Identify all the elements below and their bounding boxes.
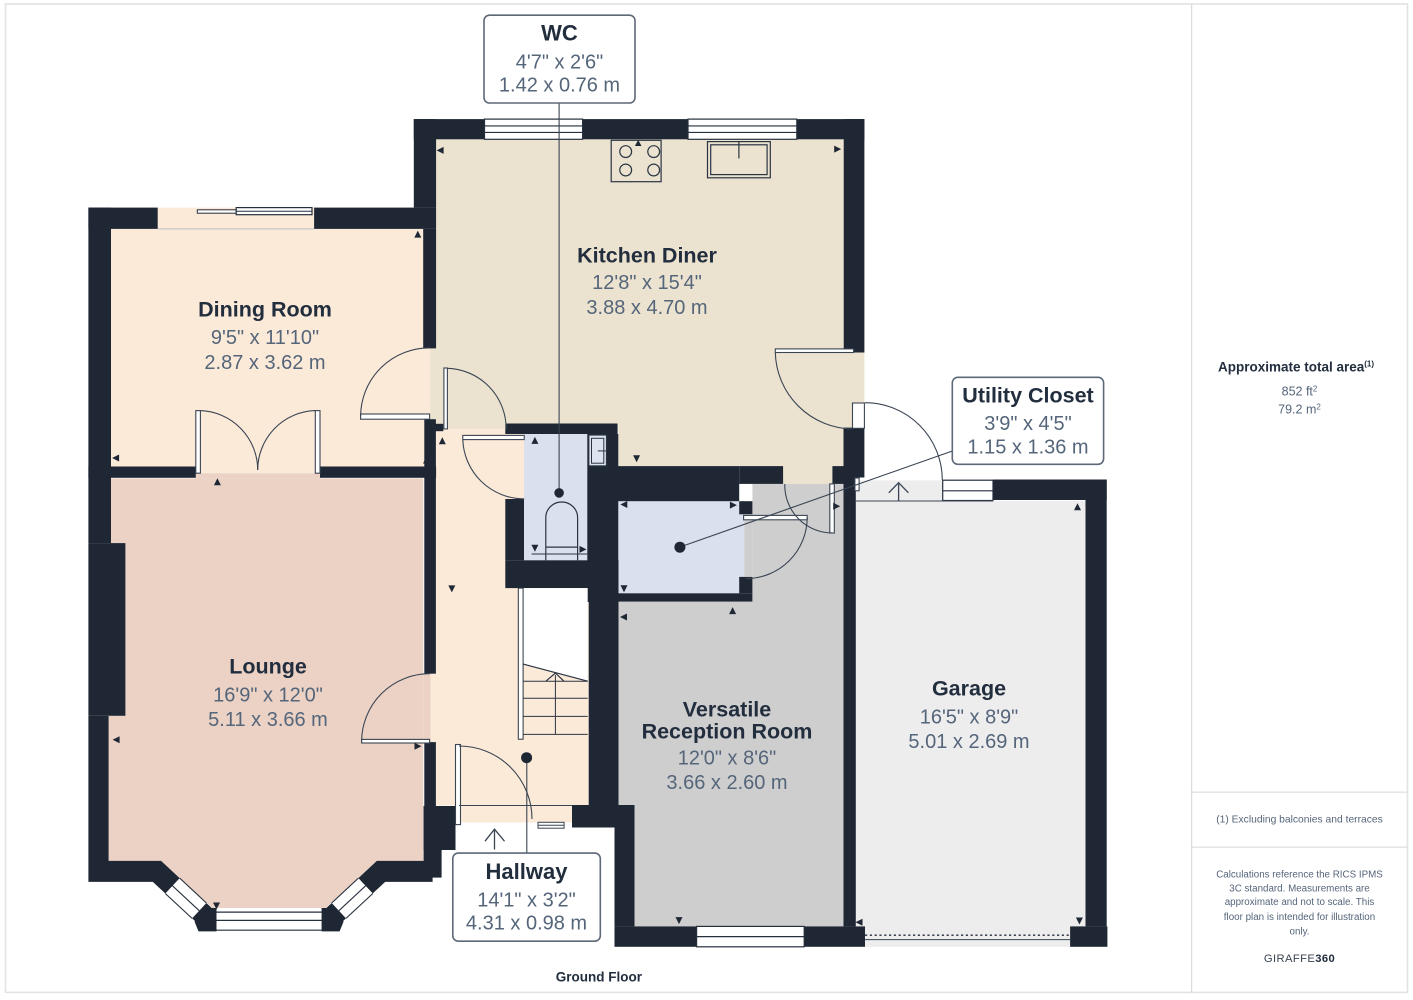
svg-text:4'7" x 2'6": 4'7" x 2'6" (516, 51, 603, 73)
svg-text:3.88 x 4.70 m: 3.88 x 4.70 m (586, 297, 707, 319)
svg-text:5.11 x 3.66 m: 5.11 x 3.66 m (208, 709, 328, 731)
svg-text:Calculations reference the RIC: Calculations reference the RICS IPMS (1216, 870, 1383, 881)
svg-text:only.: only. (1290, 926, 1310, 937)
svg-text:Ground Floor: Ground Floor (556, 970, 643, 985)
svg-text:16'5" x 8'9": 16'5" x 8'9" (920, 707, 1019, 729)
svg-text:(1) Excluding balconies and te: (1) Excluding balconies and terraces (1216, 815, 1383, 826)
svg-text:9'5" x 11'10": 9'5" x 11'10" (211, 327, 319, 349)
svg-text:1.42 x 0.76 m: 1.42 x 0.76 m (499, 75, 620, 97)
svg-text:79.2 m2: 79.2 m2 (1278, 403, 1321, 417)
svg-text:GIRAFFE360: GIRAFFE360 (1264, 953, 1335, 965)
svg-text:3.66 x 2.60 m: 3.66 x 2.60 m (666, 772, 787, 794)
svg-text:approximate and not to scale.: approximate and not to scale. This (1225, 897, 1375, 908)
svg-text:floor plan is intended for ill: floor plan is intended for illustration (1224, 912, 1375, 923)
svg-text:Hallway: Hallway (486, 859, 569, 884)
svg-text:Kitchen Diner: Kitchen Diner (577, 244, 717, 268)
svg-text:14'1" x 3'2": 14'1" x 3'2" (477, 889, 576, 911)
svg-text:3'9" x 4'5": 3'9" x 4'5" (984, 413, 1071, 435)
svg-text:Reception Room: Reception Room (642, 720, 813, 744)
svg-text:Utility Closet: Utility Closet (962, 384, 1093, 408)
svg-text:4.31 x 0.98 m: 4.31 x 0.98 m (466, 913, 587, 935)
svg-text:5.01 x 2.69 m: 5.01 x 2.69 m (908, 731, 1029, 753)
svg-text:2.87 x 3.62 m: 2.87 x 3.62 m (204, 352, 325, 374)
svg-text:3C standard. Measurements are: 3C standard. Measurements are (1229, 883, 1370, 894)
svg-text:Approximate total area(1): Approximate total area(1) (1218, 360, 1374, 375)
svg-text:16'9" x 12'0": 16'9" x 12'0" (213, 685, 323, 707)
svg-text:12'0" x 8'6": 12'0" x 8'6" (678, 748, 777, 770)
svg-text:1.15 x 1.36 m: 1.15 x 1.36 m (967, 436, 1088, 458)
svg-text:Garage: Garage (932, 677, 1006, 701)
svg-text:Dining Room: Dining Room (198, 298, 332, 322)
svg-text:Lounge: Lounge (229, 655, 307, 679)
svg-text:12'8" x 15'4": 12'8" x 15'4" (592, 272, 702, 294)
svg-text:WC: WC (541, 21, 578, 46)
svg-text:852 ft2: 852 ft2 (1282, 385, 1318, 399)
svg-text:Versatile: Versatile (683, 698, 771, 722)
